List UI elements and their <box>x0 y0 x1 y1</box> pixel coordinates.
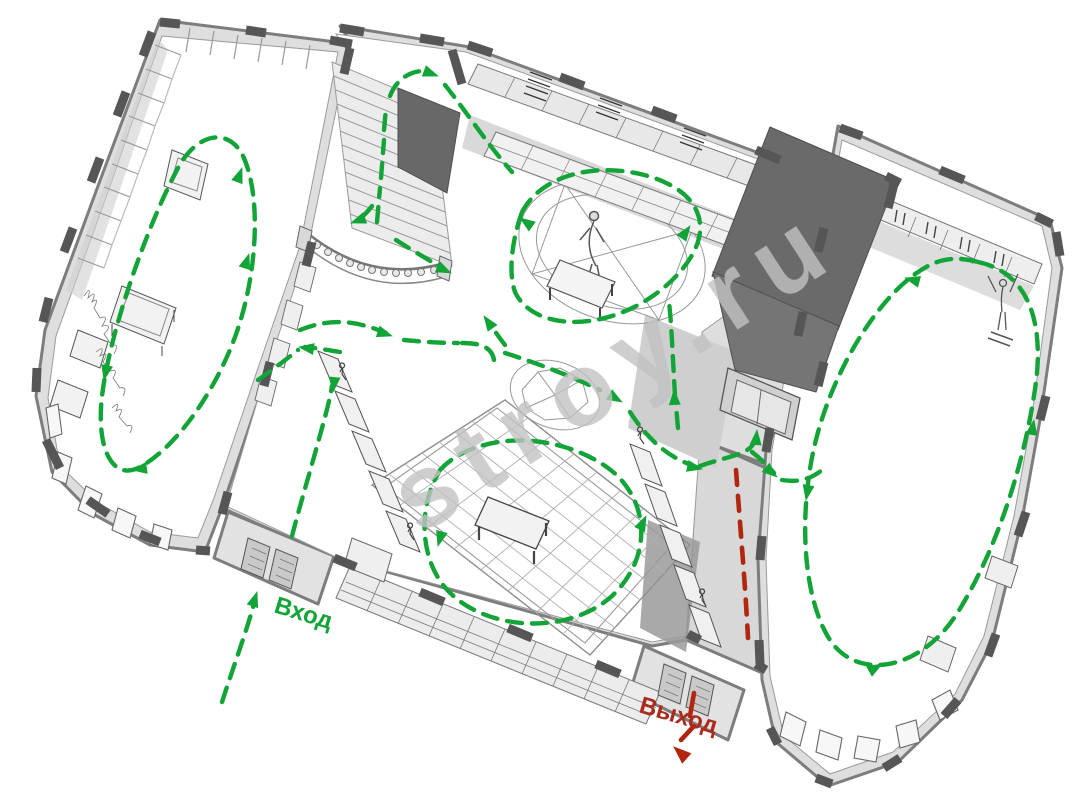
floor-plan-screenshot: Вход Выход stroy.ru <box>0 0 1080 807</box>
entrance-label: Вход <box>271 592 336 635</box>
arrowhead-icon <box>247 589 263 608</box>
floor-plan-canvas: Вход Выход stroy.ru <box>0 0 1080 807</box>
route-entrance <box>222 600 255 702</box>
red-arrowhead <box>669 741 692 764</box>
arrowhead-icon <box>669 741 692 764</box>
